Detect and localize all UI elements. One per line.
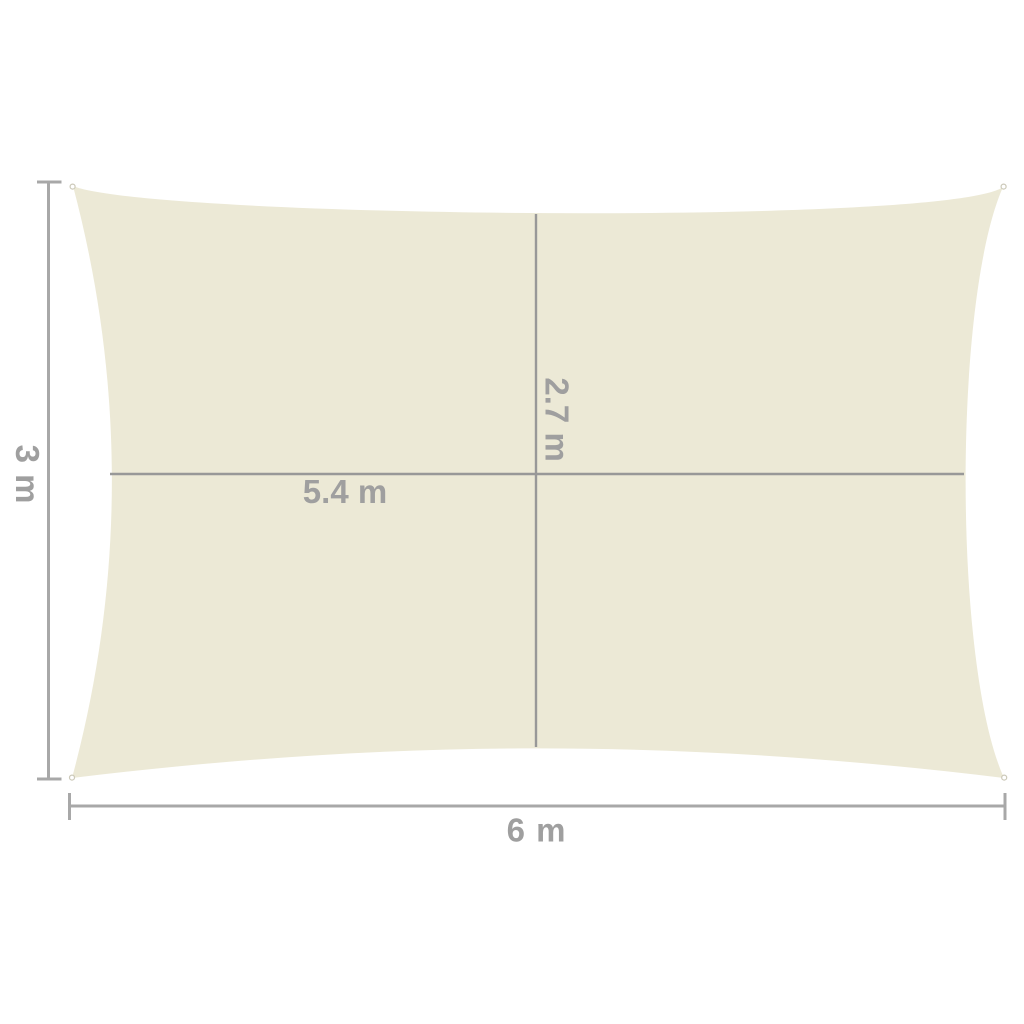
svg-text:3 m: 3 m bbox=[9, 445, 46, 505]
svg-text:6 m: 6 m bbox=[507, 812, 567, 849]
svg-text:2.7 m: 2.7 m bbox=[539, 377, 576, 461]
svg-text:5.4 m: 5.4 m bbox=[303, 473, 387, 510]
